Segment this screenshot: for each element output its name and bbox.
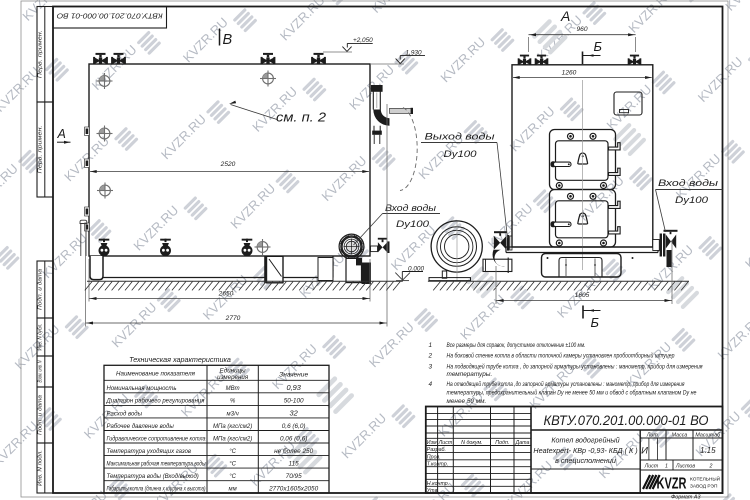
svg-text:КВТУ.070.201.00.000-01 ВО: КВТУ.070.201.00.000-01 ВО: [544, 412, 709, 428]
svg-text:Техническая характеристика: Техническая характеристика: [129, 355, 231, 364]
svg-text:Вход воды: Вход воды: [385, 203, 437, 213]
svg-text:4: 4: [429, 381, 433, 388]
svg-text:И: И: [641, 446, 648, 457]
svg-text:Дата: Дата: [515, 440, 530, 446]
svg-text:Рабочее давление воды: Рабочее давление воды: [107, 424, 175, 430]
svg-text:Взам. инв. N: Взам. инв. N: [38, 360, 44, 383]
svg-text:не более 250: не более 250: [274, 447, 313, 455]
svg-text:0,06 (0,6): 0,06 (0,6): [280, 435, 307, 442]
svg-text:Изм: Изм: [427, 440, 437, 446]
svg-text:2520: 2520: [220, 161, 236, 168]
svg-text:Лист: Лист: [644, 464, 659, 470]
svg-text:70/95: 70/95: [286, 473, 302, 480]
svg-text:Температура воды (Вход/выход): Температура воды (Вход/выход): [107, 474, 199, 480]
svg-text:2: 2: [428, 353, 433, 360]
svg-text:В: В: [223, 32, 233, 48]
svg-text:Котел водогрейный: Котел водогрейный: [551, 436, 619, 445]
svg-text:Heatexpert- КВр -0,93- КБД ( К: Heatexpert- КВр -0,93- КБД ( К ): [533, 446, 637, 455]
svg-text:Габариты котла (длинна х ширин: Габариты котла (длинна х ширина х высота…: [107, 487, 206, 493]
svg-text:Инв. N дубл.: Инв. N дубл.: [38, 324, 44, 351]
svg-text:Лит.: Лит.: [646, 433, 659, 439]
svg-text:Подп. и дата: Подп. и дата: [38, 269, 44, 310]
svg-text:Перв. примен.: Перв. примен.: [38, 126, 44, 174]
svg-text:115: 115: [289, 461, 300, 468]
svg-text:МПа (кгс/см2): МПа (кгс/см2): [213, 424, 252, 430]
svg-text:Максимальная рабочая температу: Максимальная рабочая температура воды: [107, 462, 206, 468]
svg-text:960: 960: [576, 26, 587, 33]
svg-text:Расход воды: Расход воды: [107, 411, 143, 417]
svg-text:МВт: МВт: [226, 386, 240, 392]
svg-text:мм: мм: [229, 487, 237, 493]
svg-text:0,93: 0,93: [286, 383, 301, 392]
svg-text:2650: 2650: [218, 291, 234, 298]
svg-text:Диапазон рабочего регулировани: Диапазон рабочего регулирования: [106, 399, 206, 405]
svg-text:Dy100: Dy100: [396, 219, 429, 229]
svg-text:Выход воды: Выход воды: [425, 132, 496, 142]
svg-text:1260: 1260: [562, 69, 577, 76]
svg-text:ЗАВОД РЭП: ЗАВОД РЭП: [690, 484, 718, 490]
svg-text:м3/ч: м3/ч: [227, 411, 239, 417]
svg-text:Dy100: Dy100: [675, 195, 708, 205]
svg-text:Вход воды: Вход воды: [658, 178, 719, 188]
svg-text:На отводящей трубе котла ,до з: На отводящей трубе котла ,до запорной ар…: [447, 380, 685, 388]
svg-text:Б: Б: [594, 39, 603, 54]
svg-text:Утв.: Утв.: [427, 488, 439, 494]
svg-text:1: 1: [665, 464, 668, 470]
svg-text:На боковой стенке котла в обла: На боковой стенке котла в области топочн…: [447, 352, 675, 360]
svg-text:Перв. примен.: Перв. примен.: [38, 30, 44, 78]
svg-text:+2,050: +2,050: [353, 37, 373, 44]
svg-text:Б: Б: [591, 315, 600, 330]
svg-text:50-100: 50-100: [284, 398, 304, 405]
svg-text:KVZR: KVZR: [657, 476, 687, 493]
svg-text:2770х1605х2050: 2770х1605х2050: [268, 486, 318, 493]
svg-text:1:15: 1:15: [700, 446, 716, 455]
svg-text:Масса: Масса: [672, 433, 688, 439]
svg-text:менее 50 мм.: менее 50 мм.: [447, 398, 487, 405]
svg-text:Разраб.: Разраб.: [427, 447, 446, 453]
svg-text:1: 1: [429, 342, 433, 349]
svg-text:температуры.: температуры.: [447, 371, 493, 378]
svg-text:Значение: Значение: [279, 372, 308, 379]
svg-text:Инв. N подл.: Инв. N подл.: [38, 450, 44, 486]
svg-text:2: 2: [709, 464, 713, 470]
svg-text:Температура уходящих газов: Температура уходящих газов: [107, 449, 192, 455]
svg-text:°С: °С: [229, 474, 236, 480]
svg-text:Dy100: Dy100: [444, 149, 477, 159]
svg-text:Гидравлическое сопротивление к: Гидравлическое сопротивление котла: [107, 436, 207, 442]
svg-text:Листов: Листов: [675, 464, 696, 470]
svg-text:1,930: 1,930: [406, 49, 422, 56]
svg-text:Наименование показателя: Наименование показателя: [116, 371, 196, 378]
svg-text:КВТУ.070.201.00.000-01 ВО: КВТУ.070.201.00.000-01 ВО: [57, 11, 163, 20]
svg-text:Подп.: Подп.: [495, 440, 509, 446]
svg-text:N докум.: N докум.: [461, 440, 482, 446]
svg-text:°С: °С: [229, 462, 236, 468]
svg-text:МПа (кгс/см2): МПа (кгс/см2): [213, 436, 252, 442]
svg-text:2770: 2770: [225, 315, 241, 322]
svg-text:Масштаб: Масштаб: [695, 433, 721, 439]
svg-text:измерения: измерения: [217, 374, 249, 381]
svg-text:0,6 (6,0): 0,6 (6,0): [282, 423, 306, 430]
svg-text:На подводящей трубе котла ,: На подводящей трубе котла , до запорной …: [447, 363, 703, 371]
svg-text:в специсполнении: в специсполнении: [555, 456, 616, 465]
svg-text:°С: °С: [229, 449, 236, 455]
svg-text:Н.контр.: Н.контр.: [427, 481, 449, 487]
svg-text:Подп. и дата: Подп. и дата: [38, 395, 44, 435]
svg-text:Номинальная мощность: Номинальная мощность: [107, 386, 177, 392]
svg-text:1605: 1605: [575, 292, 590, 299]
svg-text:32: 32: [290, 408, 298, 417]
svg-text:%: %: [230, 399, 236, 405]
svg-text:температуры, предохранительный: температуры, предохранительный клапан Dу…: [447, 389, 697, 397]
svg-text:Т.контр.: Т.контр.: [427, 461, 448, 467]
svg-text:А: А: [57, 127, 66, 141]
svg-text:Пров.: Пров.: [427, 454, 441, 460]
svg-text:Лист: Лист: [438, 440, 453, 446]
svg-text:Все размеры для справок, допус: Все размеры для справок, допустимое откл…: [447, 341, 586, 349]
svg-text:см. п. 2: см. п. 2: [276, 111, 326, 125]
svg-text:А: А: [560, 8, 570, 24]
svg-text:Формат А3: Формат А3: [671, 494, 701, 500]
svg-text:3: 3: [429, 364, 433, 371]
